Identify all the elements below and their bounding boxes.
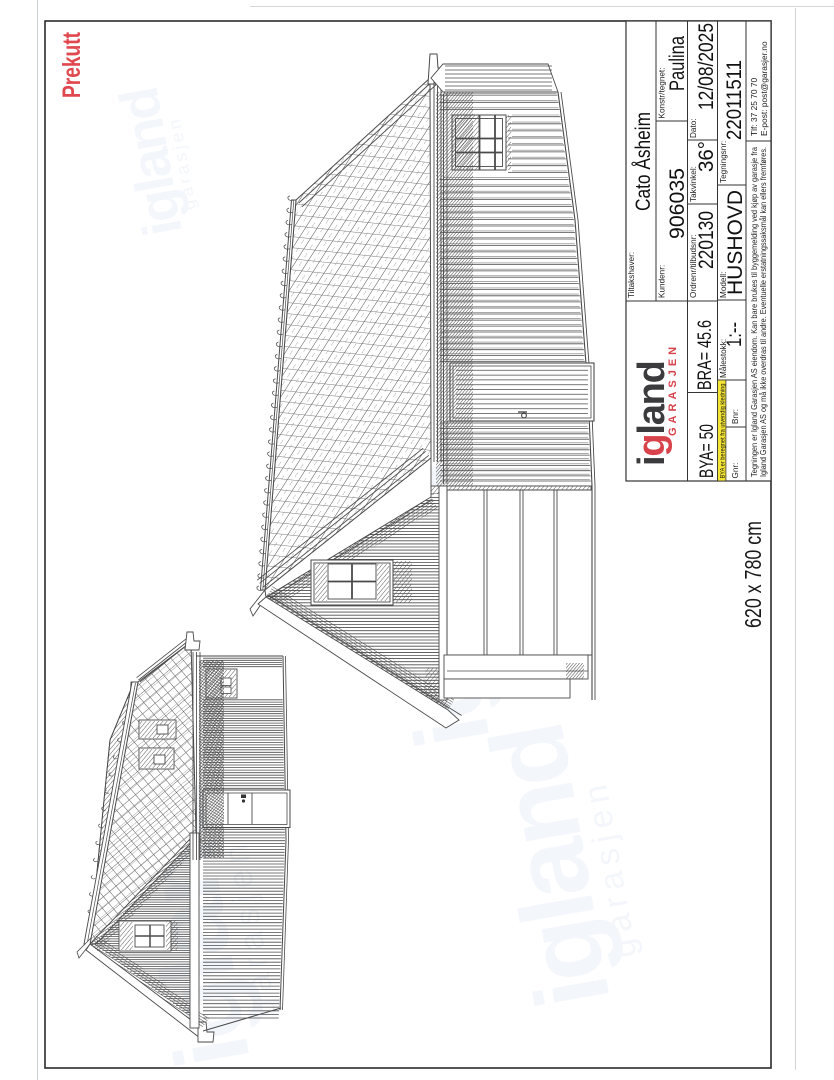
- svg-text:HUSHOVD: HUSHOVD: [724, 190, 747, 295]
- svg-text:Tegningen er Igland Garasjen A: Tegningen er Igland Garasjen AS eiendom.…: [750, 146, 759, 477]
- svg-text:12/08/2025: 12/08/2025: [695, 23, 718, 110]
- svg-text:906035: 906035: [666, 168, 689, 239]
- svg-text:BRA= 45.6: BRA= 45.6: [695, 320, 716, 390]
- svg-text:Paulina: Paulina: [666, 36, 689, 91]
- svg-text:Tiltakshaver:: Tiltakshaver:: [627, 252, 636, 298]
- svg-text:1:--: 1:--: [723, 322, 746, 347]
- svg-text:Gnr:: Gnr:: [731, 463, 740, 479]
- svg-text:BYA= 50: BYA= 50: [697, 424, 718, 478]
- svg-text:Igland Garasjen AS og må ikke: Igland Garasjen AS og må ikke overdras t…: [759, 147, 768, 477]
- svg-text:BYA er beregnet fra utvendig k: BYA er beregnet fra utvendig kledning: [719, 383, 726, 478]
- svg-text:E-post: post@garasjer.no: E-post: post@garasjer.no: [759, 41, 769, 136]
- svg-text:Cato Åsheim: Cato Åsheim: [632, 112, 655, 211]
- svg-text:Prekutt: Prekutt: [58, 31, 86, 98]
- svg-text:Tlf: 37 25 70 70: Tlf: 37 25 70 70: [749, 77, 759, 136]
- svg-text:220130: 220130: [695, 211, 718, 269]
- svg-text:22011511: 22011511: [723, 60, 746, 140]
- svg-text:Bnr:: Bnr:: [731, 409, 740, 424]
- svg-text:Tegningsnr:: Tegningsnr:: [719, 141, 728, 183]
- svg-text:36°: 36°: [695, 141, 718, 172]
- svg-text:Dato:: Dato:: [689, 118, 698, 138]
- svg-text:GARASJEN: GARASJEN: [667, 343, 679, 436]
- svg-text:620 x 780 cm: 620 x 780 cm: [740, 521, 766, 628]
- svg-text:Kundenr:: Kundenr:: [658, 265, 667, 298]
